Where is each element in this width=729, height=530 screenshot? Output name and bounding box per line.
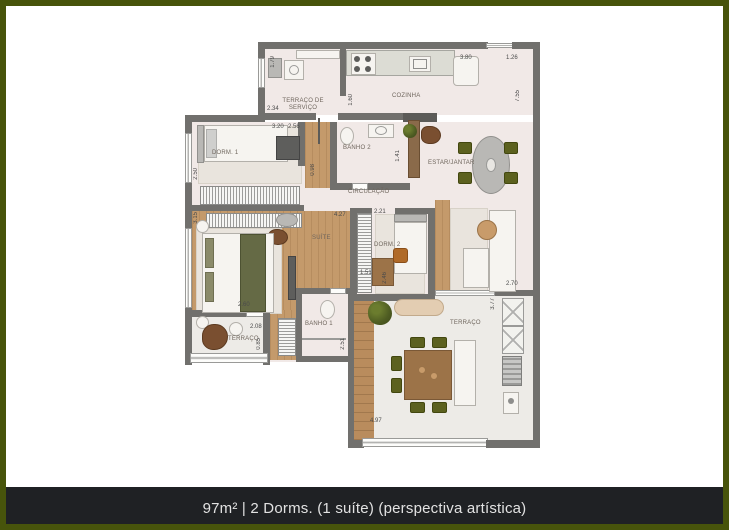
dim-suite-lower-width: 2.60 <box>238 302 250 308</box>
dim-banho1-height: 2.51 <box>340 338 346 350</box>
wall-banho1-bottom <box>296 356 354 362</box>
dim-banho1-width: 1.51 <box>360 270 372 276</box>
door-banho1 <box>330 288 346 294</box>
dim-servico-height: 1.79 <box>270 56 276 68</box>
railing-gourmet <box>362 438 488 447</box>
dim-cozinha-width: 3.80 <box>460 55 472 61</box>
label-estar-jantar: ESTAR/JANTAR <box>428 160 475 167</box>
wall-right-main <box>533 42 540 295</box>
top-dark-edge <box>0 0 729 3</box>
dim-dorm1-height: 2.50 <box>193 168 199 180</box>
plant-icon <box>403 124 417 138</box>
burner-icon <box>365 66 371 72</box>
gourmet-cabinet <box>502 326 524 354</box>
service-shelf <box>296 50 340 59</box>
caption-text: 97m² | 2 Dorms. (1 suíte) (perspectiva a… <box>203 500 527 517</box>
banho2-basin-icon <box>375 126 387 135</box>
burner-icon <box>365 56 371 62</box>
label-terraco-suite: TERRAÇO <box>228 336 259 343</box>
burner-icon <box>354 56 360 62</box>
plant-icon <box>368 301 392 325</box>
gourmet-chair <box>432 337 447 348</box>
plate-icon <box>418 366 426 374</box>
dim-terraco-suite-width: 2.08 <box>250 324 262 330</box>
table-centerpiece-icon <box>486 158 496 172</box>
sofa-chaise <box>463 248 489 288</box>
barbecue-grill <box>502 356 522 386</box>
dim-dorm1-width: 3.20 <box>272 124 284 130</box>
window-service <box>258 58 265 88</box>
armchair-estar <box>421 126 441 144</box>
gourmet-table <box>404 350 452 400</box>
dim-servico-pass: 1.60 <box>348 94 354 106</box>
dorm1-headboard <box>197 125 204 163</box>
label-dorm2: DORM. 2 <box>374 242 400 249</box>
wall-topblock-bottom-a <box>258 113 316 120</box>
caption-bar: 97m² | 2 Dorms. (1 suíte) (perspectiva a… <box>0 487 729 530</box>
banho2-toilet <box>340 127 354 145</box>
wall-main-top-left <box>185 115 265 122</box>
dim-terraco-suite-height: 0.85 <box>256 338 262 350</box>
dim-estar-height: 7.55 <box>515 90 521 102</box>
dorm1-wardrobe <box>200 186 300 205</box>
wall-dorm2-right <box>428 208 435 300</box>
dim-suite-width: 4.27 <box>334 212 346 218</box>
dim-circ-width: 0.98 <box>310 164 316 176</box>
window-top-right <box>486 43 514 48</box>
label-terraco-servico: TERRAÇO DE SERVIÇO <box>282 98 324 112</box>
dining-chair <box>504 142 518 154</box>
wall-right-terrace <box>533 290 540 448</box>
suite-pillow <box>205 272 214 302</box>
gourmet-chair <box>410 402 425 413</box>
suite-closet-hatch <box>278 318 296 356</box>
label-banho2: BANHO 2 <box>343 145 371 152</box>
gourmet-daybed <box>394 299 444 316</box>
label-suite: SUÍTE <box>312 235 331 242</box>
gourmet-island-bench <box>454 340 476 406</box>
sink-basin-icon <box>413 59 427 69</box>
gourmet-chair <box>391 356 402 371</box>
washer-drum-icon <box>289 65 299 75</box>
gourmet-chair <box>391 378 402 393</box>
label-cozinha: COZINHA <box>392 93 420 100</box>
wall-gourmet-bottom-right <box>486 440 540 448</box>
dim-terraco-gourmet-width: 4.97 <box>370 418 382 424</box>
dim-suite-height: 3.15 <box>193 212 199 224</box>
window-dorm1 <box>185 133 192 183</box>
dim-terraco-gourmet-height: 3.77 <box>490 298 496 310</box>
railing-terrace-suite <box>190 353 268 363</box>
dorm2-wardrobe <box>357 213 372 293</box>
dining-chair <box>504 172 518 184</box>
label-dorm1: DORM. 1 <box>212 150 238 157</box>
side-table-round <box>477 220 497 240</box>
wall-dorm2-left <box>350 208 357 300</box>
wall-suite-top <box>192 205 304 211</box>
living-wood-strip <box>435 200 450 295</box>
dim-banho2-height: 1.41 <box>395 150 401 162</box>
label-circulacao: CIRCULAÇÃO <box>348 189 389 196</box>
banho1-toilet <box>320 300 335 319</box>
wall-top-a <box>258 42 488 49</box>
suite-tv-panel <box>288 256 296 300</box>
wall-banho1-left <box>296 288 302 362</box>
window-suite <box>185 228 192 308</box>
suite-pillow <box>205 238 214 268</box>
burner-icon <box>354 66 360 72</box>
suite-pouf <box>276 213 298 227</box>
terrace-side-table <box>229 322 243 336</box>
dim-canto-width: 1.26 <box>506 55 518 61</box>
dorm2-chair <box>393 248 408 263</box>
plate-icon <box>430 372 438 380</box>
wall-topblock-bottom-b <box>338 113 403 120</box>
dorm1-dresser <box>276 136 300 160</box>
gourmet-cabinet <box>502 298 524 326</box>
sliding-door-living-terrace <box>435 290 495 296</box>
dorm2-headboard <box>394 214 427 222</box>
dim-estar-width: 2.70 <box>506 281 518 287</box>
label-terraco-gourmet: TERRAÇO <box>450 320 481 327</box>
page: TERRAÇO DE SERVIÇO COZINHA ESTAR/JANTAR … <box>0 0 729 530</box>
wall-gourmet-left <box>348 290 354 448</box>
faucet-icon <box>508 398 514 404</box>
dim-dorm2-height: 2.46 <box>382 272 388 284</box>
label-banho1: BANHO 1 <box>305 321 333 328</box>
gourmet-chair <box>410 337 425 348</box>
wall-banho2-left <box>330 122 337 184</box>
floor-plan: TERRAÇO DE SERVIÇO COZINHA ESTAR/JANTAR … <box>0 0 717 481</box>
dim-dorm2-width: 2.21 <box>374 209 386 215</box>
gourmet-chair <box>432 402 447 413</box>
entry-door-leaf <box>318 118 320 144</box>
dining-chair <box>458 172 472 184</box>
dim-servico-width: 2.34 <box>267 106 279 112</box>
suite-blanket <box>240 234 266 312</box>
dim-hall-width: 2.56 <box>288 124 300 130</box>
dining-chair <box>458 142 472 154</box>
